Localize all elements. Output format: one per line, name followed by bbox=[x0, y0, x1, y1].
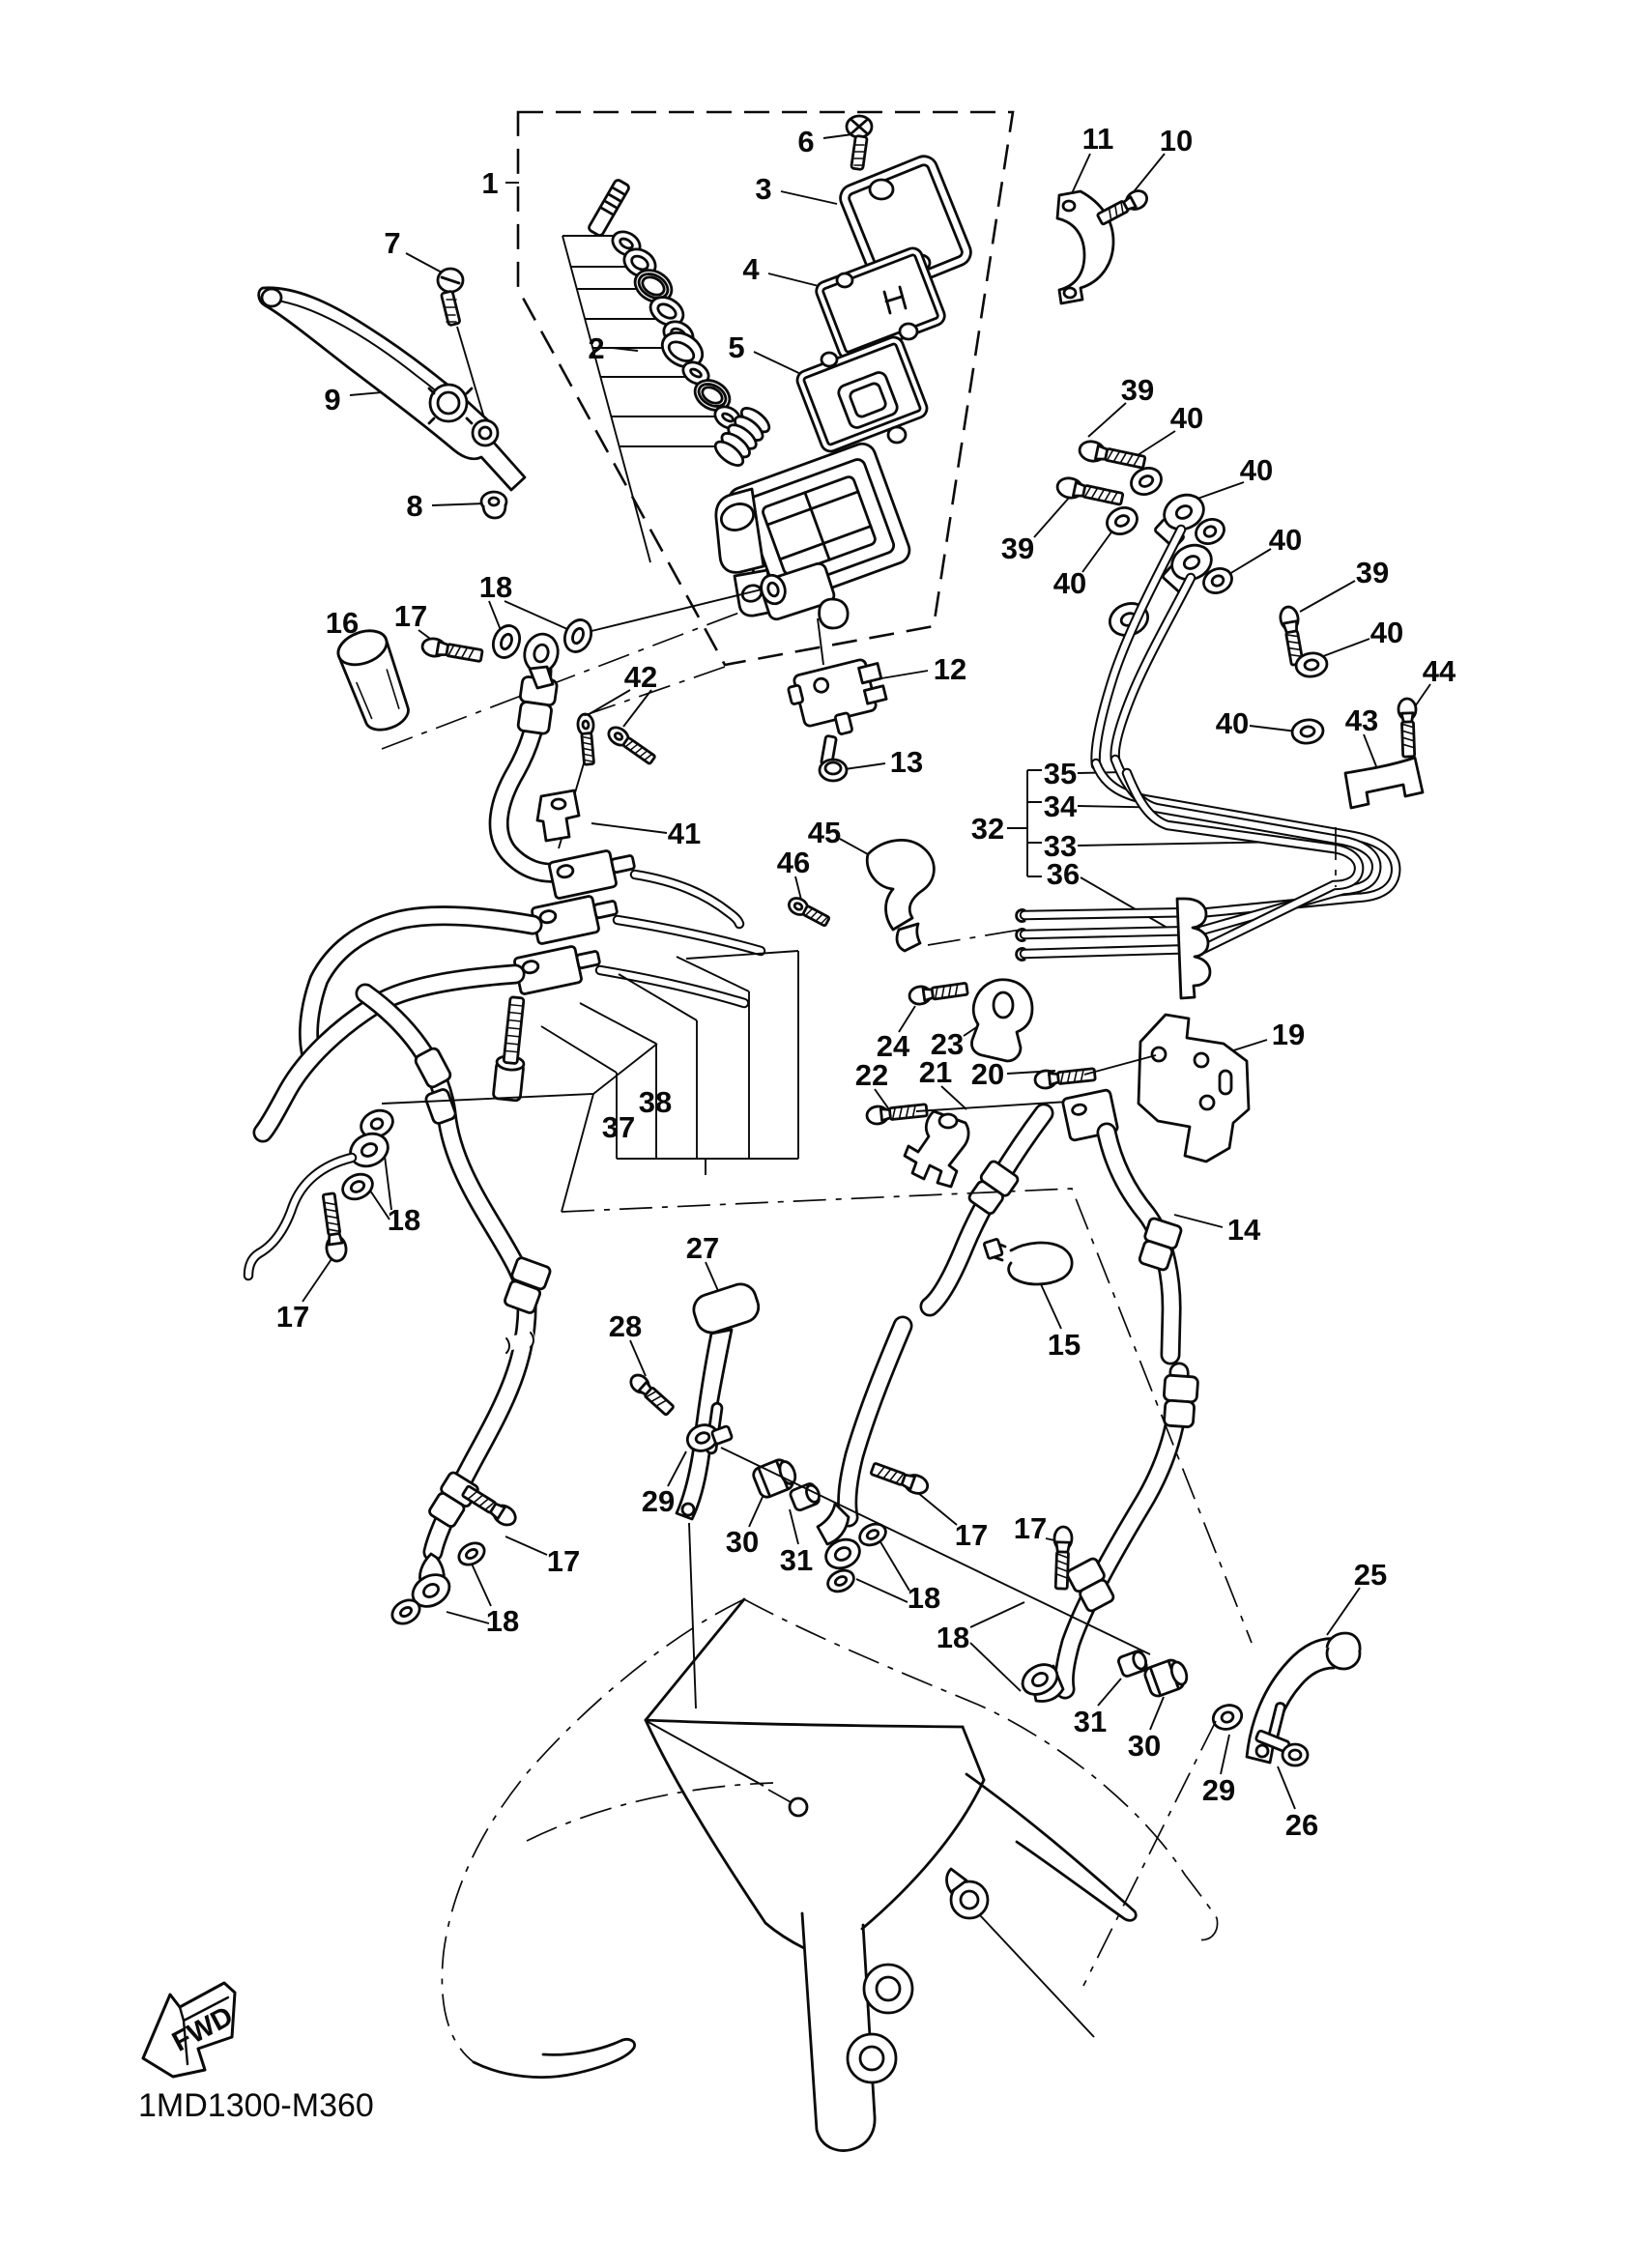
svg-text:39: 39 bbox=[1001, 531, 1034, 565]
svg-text:27: 27 bbox=[686, 1231, 719, 1265]
svg-text:8: 8 bbox=[406, 489, 422, 523]
svg-text:31: 31 bbox=[780, 1543, 813, 1577]
svg-text:40: 40 bbox=[1240, 453, 1273, 487]
svg-text:1: 1 bbox=[481, 166, 498, 200]
svg-text:18: 18 bbox=[486, 1604, 519, 1638]
svg-text:17: 17 bbox=[1014, 1511, 1047, 1545]
svg-text:17: 17 bbox=[276, 1300, 309, 1334]
svg-text:40: 40 bbox=[1370, 616, 1403, 649]
svg-text:6: 6 bbox=[797, 125, 814, 158]
svg-text:29: 29 bbox=[1202, 1773, 1235, 1807]
svg-text:18: 18 bbox=[908, 1581, 940, 1615]
svg-text:20: 20 bbox=[971, 1057, 1004, 1091]
svg-text:40: 40 bbox=[1053, 566, 1086, 600]
svg-text:5: 5 bbox=[728, 330, 744, 364]
svg-text:3: 3 bbox=[755, 172, 771, 206]
svg-text:11: 11 bbox=[1082, 122, 1114, 156]
svg-text:45: 45 bbox=[808, 816, 841, 849]
svg-text:34: 34 bbox=[1044, 789, 1078, 823]
svg-text:17: 17 bbox=[955, 1518, 988, 1552]
svg-text:19: 19 bbox=[1272, 1018, 1305, 1051]
svg-text:36: 36 bbox=[1047, 857, 1080, 891]
svg-text:41: 41 bbox=[668, 817, 701, 850]
svg-text:12: 12 bbox=[934, 652, 966, 686]
svg-text:39: 39 bbox=[1121, 373, 1154, 407]
svg-text:26: 26 bbox=[1285, 1808, 1318, 1842]
svg-text:38: 38 bbox=[639, 1085, 672, 1119]
svg-text:18: 18 bbox=[388, 1203, 420, 1237]
svg-text:40: 40 bbox=[1269, 523, 1302, 557]
svg-text:37: 37 bbox=[602, 1110, 635, 1144]
svg-text:40: 40 bbox=[1170, 401, 1203, 435]
svg-text:39: 39 bbox=[1356, 556, 1389, 589]
svg-text:28: 28 bbox=[609, 1309, 642, 1343]
svg-text:23: 23 bbox=[931, 1027, 964, 1061]
svg-text:9: 9 bbox=[324, 383, 340, 416]
svg-text:30: 30 bbox=[726, 1525, 759, 1559]
svg-text:40: 40 bbox=[1216, 706, 1249, 740]
svg-text:46: 46 bbox=[777, 846, 810, 879]
svg-text:17: 17 bbox=[394, 599, 427, 633]
svg-text:29: 29 bbox=[642, 1484, 675, 1518]
svg-text:42: 42 bbox=[624, 660, 657, 694]
svg-text:24: 24 bbox=[877, 1029, 910, 1063]
svg-text:15: 15 bbox=[1048, 1328, 1081, 1362]
svg-text:25: 25 bbox=[1354, 1558, 1387, 1592]
svg-text:1MD1300-M360: 1MD1300-M360 bbox=[138, 2087, 374, 2124]
svg-text:18: 18 bbox=[937, 1621, 969, 1654]
svg-text:35: 35 bbox=[1044, 757, 1077, 790]
svg-text:18: 18 bbox=[479, 570, 512, 604]
svg-text:14: 14 bbox=[1227, 1213, 1261, 1247]
svg-text:43: 43 bbox=[1345, 703, 1378, 737]
svg-text:4: 4 bbox=[742, 252, 760, 286]
svg-text:10: 10 bbox=[1160, 124, 1193, 158]
svg-text:7: 7 bbox=[384, 226, 400, 260]
svg-text:30: 30 bbox=[1128, 1729, 1161, 1763]
svg-text:32: 32 bbox=[971, 812, 1004, 846]
svg-text:22: 22 bbox=[855, 1058, 888, 1092]
svg-text:31: 31 bbox=[1074, 1705, 1107, 1738]
svg-text:13: 13 bbox=[890, 745, 923, 779]
svg-text:17: 17 bbox=[547, 1544, 580, 1578]
svg-text:44: 44 bbox=[1423, 654, 1456, 688]
